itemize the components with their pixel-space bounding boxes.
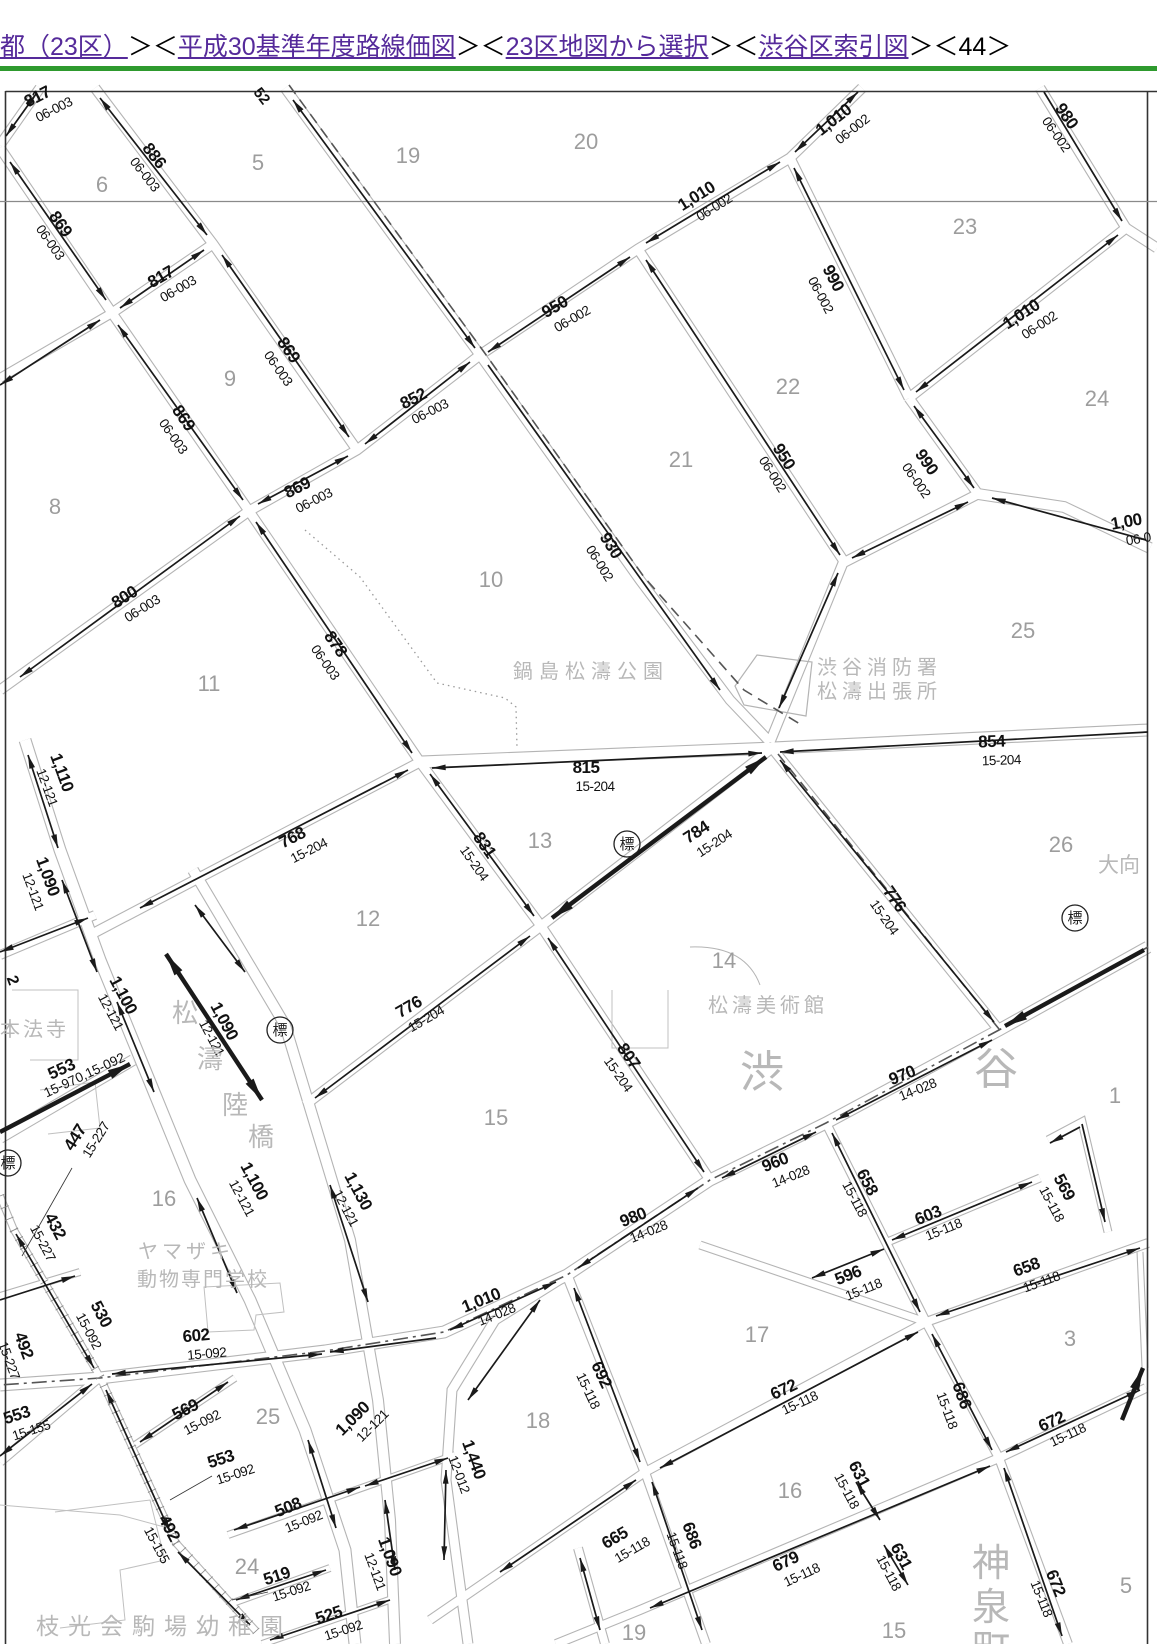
svg-text:1: 1 <box>1109 1083 1121 1108</box>
svg-text:大向: 大向 <box>1098 854 1140 877</box>
svg-text:18: 18 <box>526 1408 550 1433</box>
svg-text:15-204: 15-204 <box>575 779 615 794</box>
svg-text:松: 松 <box>172 998 198 1028</box>
svg-text:本法寺: 本法寺 <box>0 1018 69 1041</box>
svg-text:21: 21 <box>669 447 693 472</box>
svg-text:22: 22 <box>776 374 800 399</box>
svg-text:854: 854 <box>978 732 1007 752</box>
svg-text:17: 17 <box>745 1322 769 1347</box>
svg-text:24: 24 <box>235 1554 259 1579</box>
svg-text:19: 19 <box>622 1620 646 1644</box>
svg-text:陸: 陸 <box>222 1090 248 1120</box>
svg-text:鍋島松濤公園: 鍋島松濤公園 <box>513 660 669 683</box>
svg-text:14: 14 <box>712 948 736 973</box>
svg-text:5: 5 <box>252 150 264 175</box>
svg-text:橋: 橋 <box>248 1122 274 1152</box>
svg-text:松濤出張所: 松濤出張所 <box>817 680 942 703</box>
svg-text:動物専門学校: 動物専門学校 <box>137 1268 269 1291</box>
svg-text:15-204: 15-204 <box>982 752 1023 768</box>
svg-text:標: 標 <box>0 1155 15 1172</box>
svg-text:25: 25 <box>256 1404 280 1429</box>
svg-text:13: 13 <box>528 828 552 853</box>
svg-text:19: 19 <box>396 143 420 168</box>
svg-text:標: 標 <box>272 1022 287 1039</box>
svg-text:枝光会駒場幼稚園: 枝光会駒場幼稚園 <box>36 1613 292 1639</box>
svg-text:16: 16 <box>778 1478 802 1503</box>
svg-text:20: 20 <box>574 129 598 154</box>
svg-text:15: 15 <box>882 1618 906 1643</box>
svg-text:16: 16 <box>152 1186 176 1211</box>
svg-text:濤: 濤 <box>197 1044 223 1074</box>
svg-text:26: 26 <box>1049 832 1073 857</box>
svg-text:15: 15 <box>484 1105 508 1130</box>
svg-text:神: 神 <box>972 1543 1010 1585</box>
svg-text:10: 10 <box>479 567 503 592</box>
svg-text:標: 標 <box>1067 910 1082 927</box>
svg-text:3: 3 <box>1064 1326 1076 1351</box>
svg-text:12: 12 <box>356 906 380 931</box>
svg-text:松濤美術館: 松濤美術館 <box>708 994 828 1017</box>
svg-text:815: 815 <box>573 758 600 777</box>
svg-text:泉: 泉 <box>972 1587 1010 1629</box>
svg-text:602: 602 <box>182 1325 210 1346</box>
svg-text:渋谷消防署: 渋谷消防署 <box>817 656 942 679</box>
svg-text:6: 6 <box>96 172 108 197</box>
svg-text:24: 24 <box>1085 386 1109 411</box>
svg-text:23: 23 <box>953 214 977 239</box>
svg-text:谷: 谷 <box>974 1045 1018 1094</box>
svg-text:町: 町 <box>972 1629 1010 1644</box>
svg-text:渋: 渋 <box>740 1048 784 1097</box>
svg-text:9: 9 <box>224 366 236 391</box>
svg-text:8: 8 <box>49 494 61 519</box>
svg-text:25: 25 <box>1011 618 1035 643</box>
svg-text:5: 5 <box>1120 1573 1132 1598</box>
svg-text:11: 11 <box>198 671 221 696</box>
svg-text:ヤマザキ: ヤマザキ <box>138 1241 234 1263</box>
svg-text:標: 標 <box>619 836 634 853</box>
